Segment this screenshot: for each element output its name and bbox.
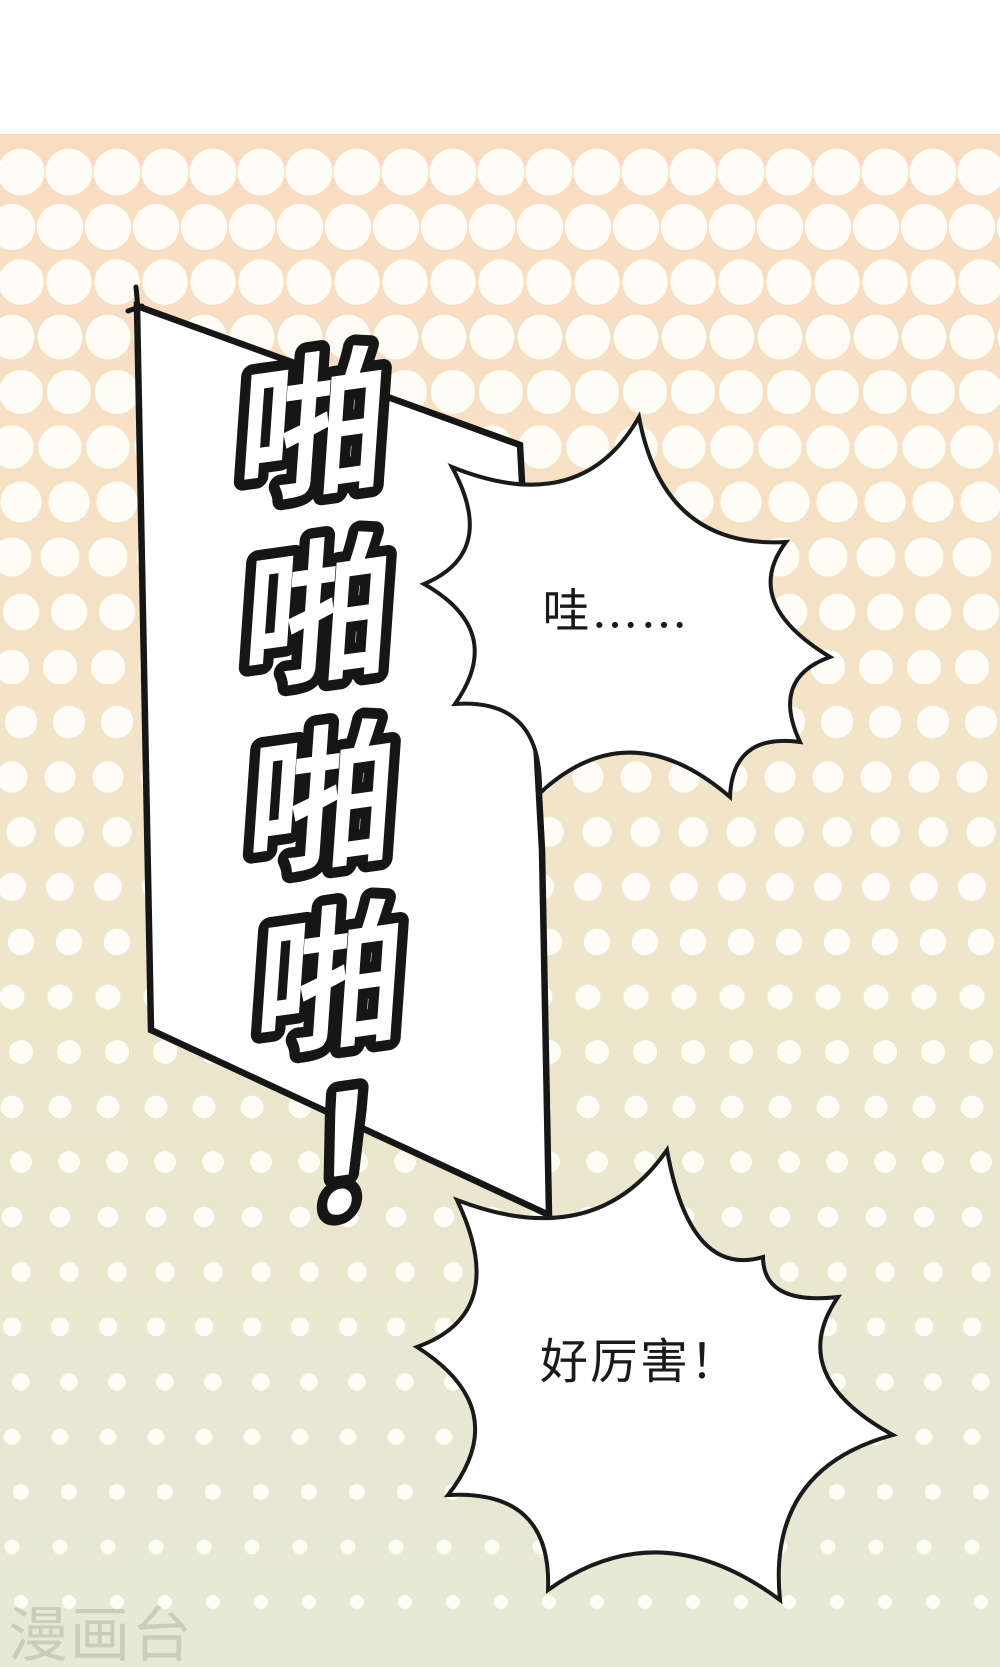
- bubble-2-text: 好厉害！: [540, 1334, 740, 1390]
- sfx-char-1: 啪: [233, 334, 393, 525]
- bubble-1-text: 哇……: [543, 585, 690, 640]
- sfx-exclamation: ！: [298, 1053, 464, 1251]
- watermark-text: 漫画台: [8, 1602, 194, 1667]
- sfx-char-3: 啪: [242, 707, 402, 898]
- sfx-char-4: 啪: [250, 887, 410, 1078]
- sfx-char-2: 啪: [238, 520, 398, 711]
- comic-page: 啪 啪 啪 啪 ！ 哇…… 好厉害！ 漫画台: [0, 0, 1000, 1667]
- comic-canvas: 啪 啪 啪 啪 ！ 哇…… 好厉害！ 漫画台: [0, 0, 1000, 1667]
